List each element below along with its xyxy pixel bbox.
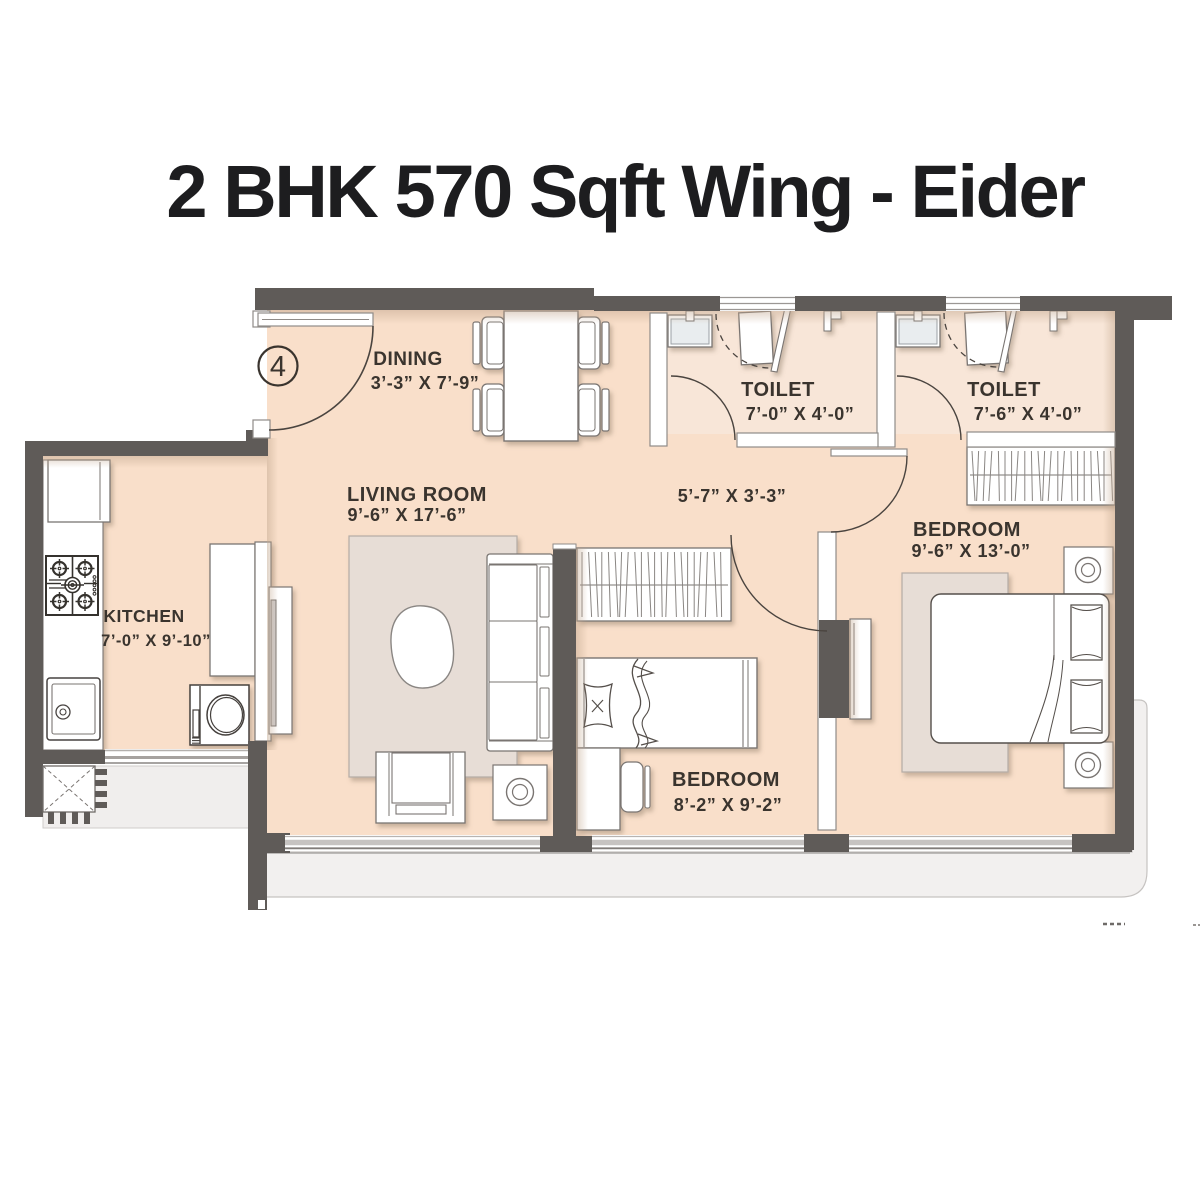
svg-text:BEDROOM: BEDROOM bbox=[913, 519, 1021, 541]
svg-text:9’-6” X 13’-0”: 9’-6” X 13’-0” bbox=[911, 541, 1030, 561]
svg-text:7’-0” X 4’-0”: 7’-0” X 4’-0” bbox=[746, 404, 855, 424]
svg-text:8’-2” X 9’-2”: 8’-2” X 9’-2” bbox=[674, 795, 783, 815]
svg-text:DINING: DINING bbox=[373, 349, 443, 370]
svg-text:2 BHK 570 Sqft Wing - Eider: 2 BHK 570 Sqft Wing - Eider bbox=[166, 150, 1085, 233]
svg-text:TOILET: TOILET bbox=[967, 379, 1041, 401]
svg-text:TOILET: TOILET bbox=[741, 379, 815, 401]
svg-text:KITCHEN: KITCHEN bbox=[103, 606, 184, 626]
svg-text:7’-0” X 9’-10”: 7’-0” X 9’-10” bbox=[101, 632, 211, 650]
svg-text:LIVING ROOM: LIVING ROOM bbox=[347, 484, 487, 506]
svg-text:9’-6” X 17’-6”: 9’-6” X 17’-6” bbox=[347, 505, 466, 525]
svg-text:4: 4 bbox=[270, 351, 286, 383]
svg-text:BEDROOM: BEDROOM bbox=[672, 769, 780, 791]
svg-text:3’-3” X 7’-9”: 3’-3” X 7’-9” bbox=[371, 373, 480, 393]
svg-text:5’-7” X 3’-3”: 5’-7” X 3’-3” bbox=[678, 486, 787, 506]
svg-text:7’-6” X 4’-0”: 7’-6” X 4’-0” bbox=[974, 404, 1083, 424]
